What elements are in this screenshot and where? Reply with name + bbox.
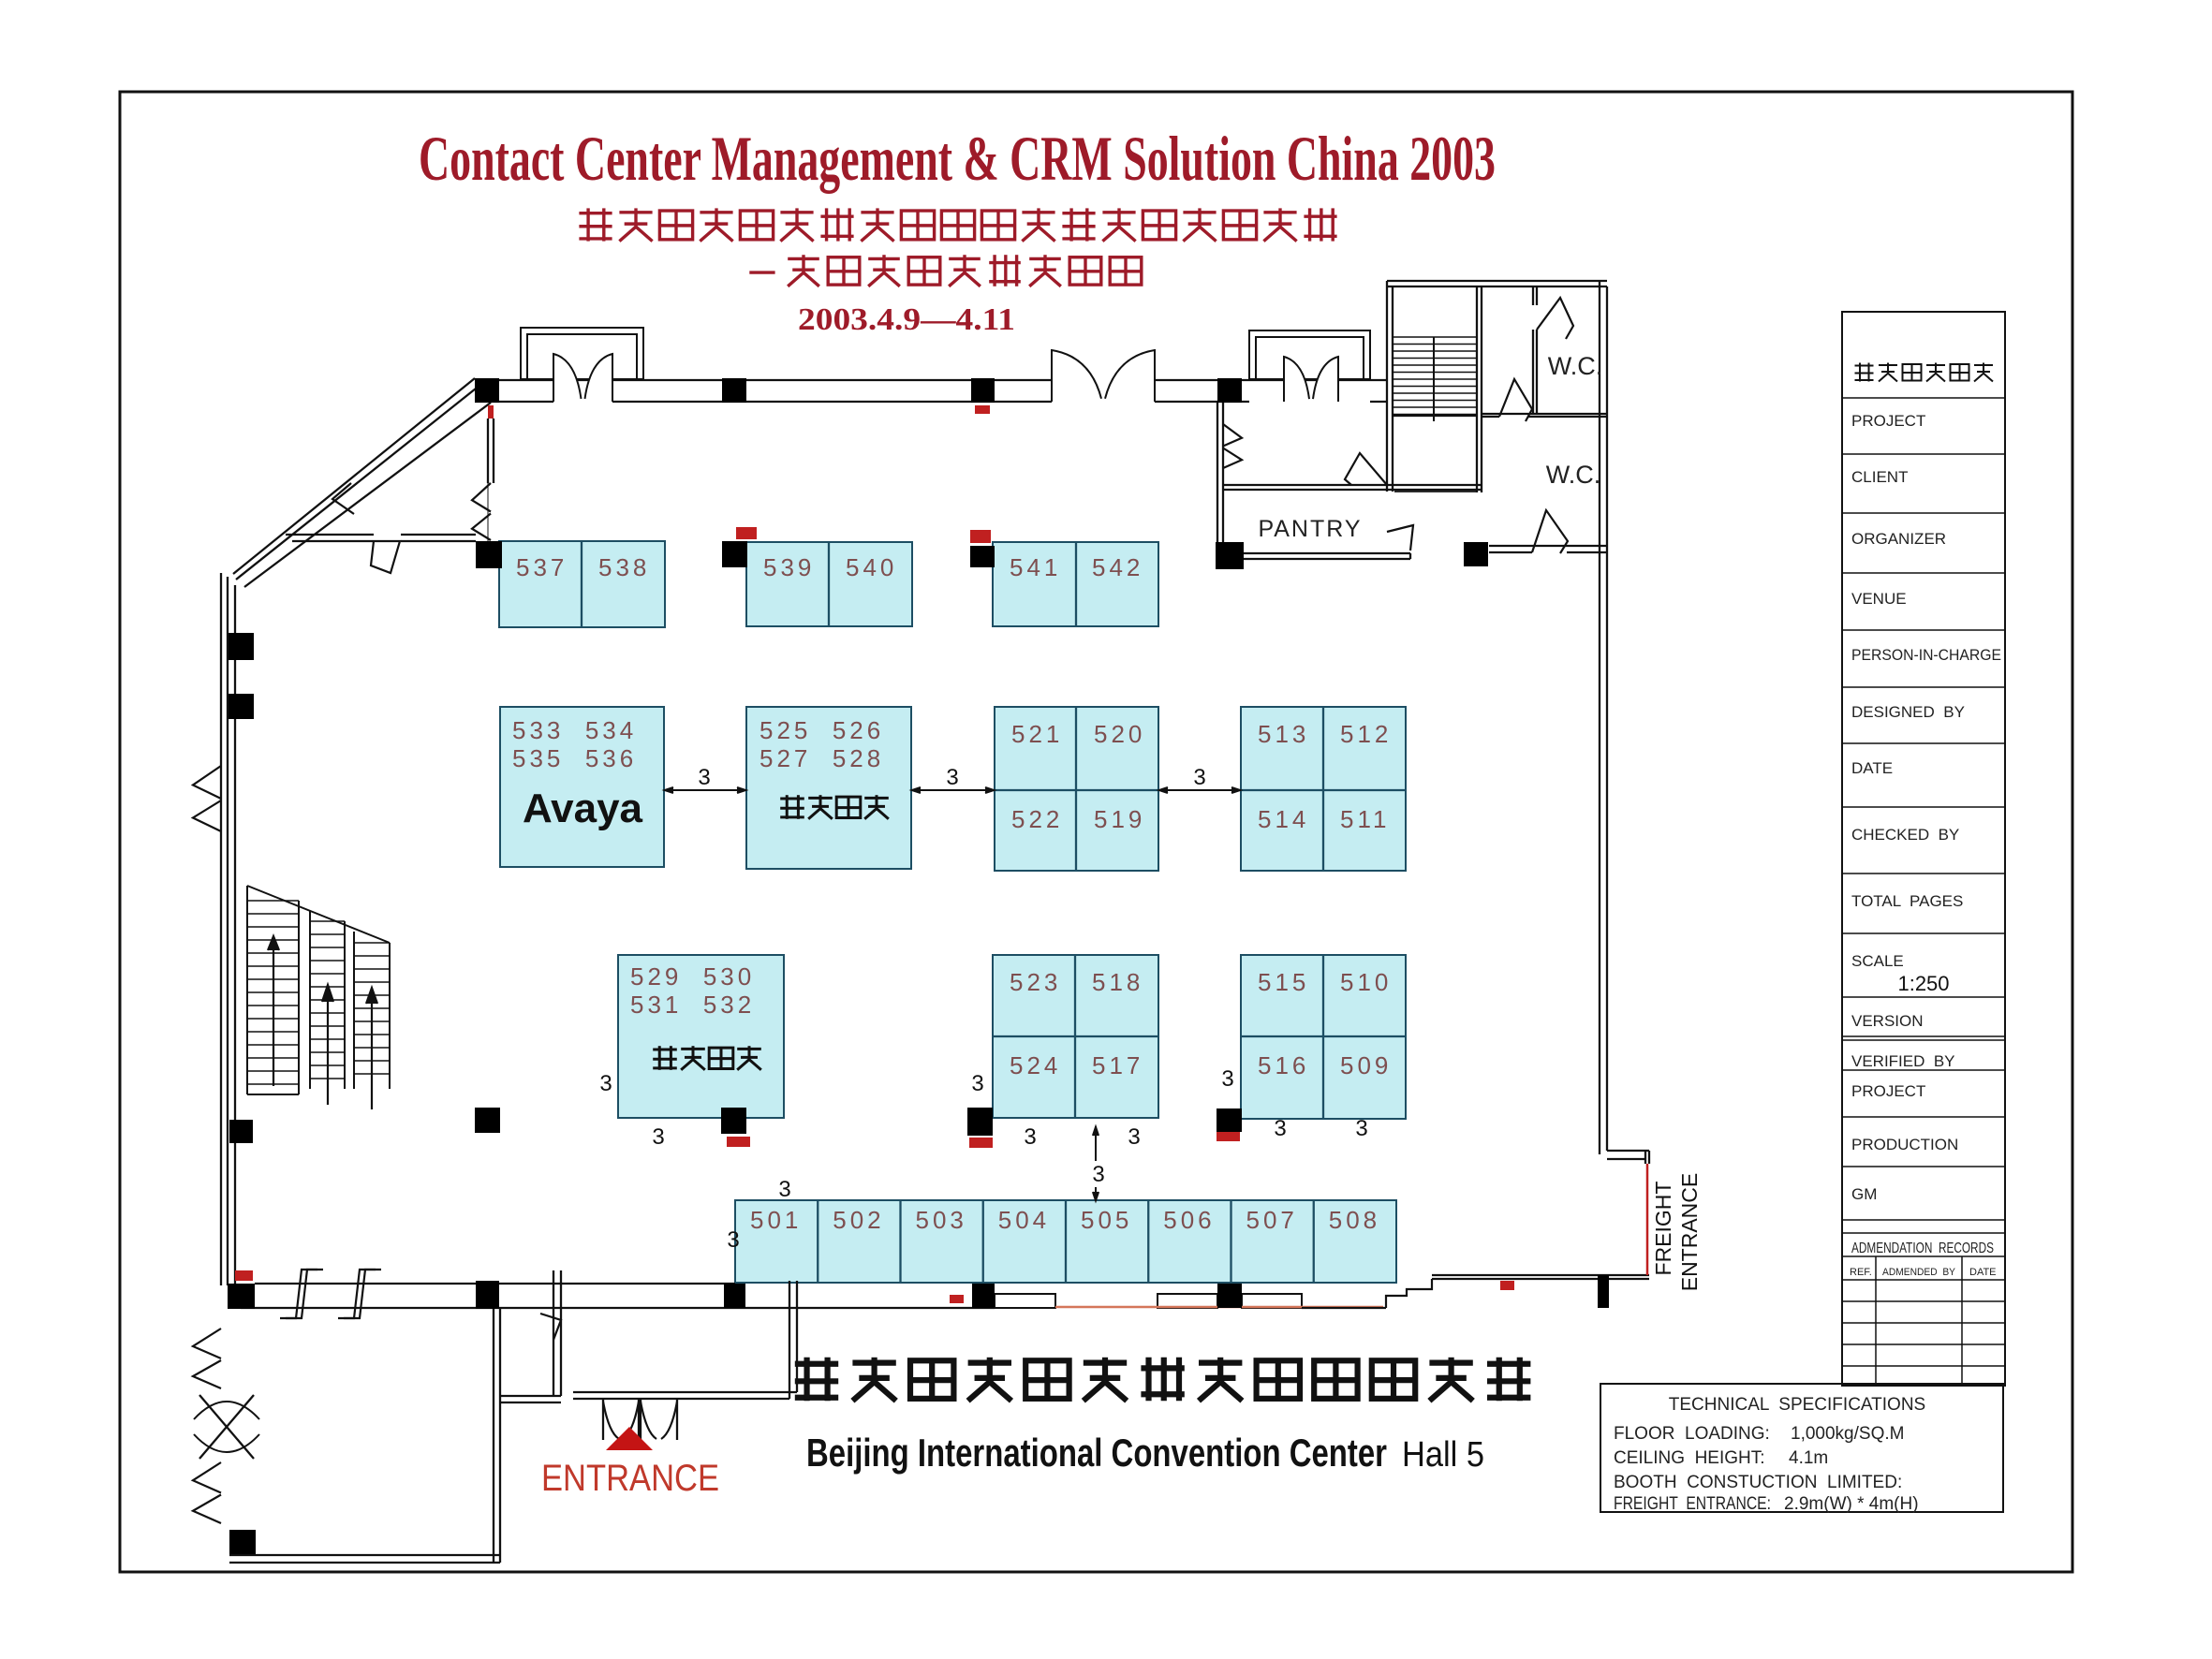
svg-text:ENTRANCE: ENTRANCE [541,1458,719,1499]
svg-text:VERIFIED BY: VERIFIED BY [1851,1052,1955,1070]
svg-text:3: 3 [946,765,958,790]
svg-text:533 534: 533 534 [512,716,637,744]
svg-text:3: 3 [1128,1124,1140,1150]
svg-text:513: 513 [1258,720,1309,748]
svg-text:527 528: 527 528 [759,744,884,772]
svg-text:2003.4.9—4.11: 2003.4.9—4.11 [798,302,1015,337]
svg-text:1:250: 1:250 [1897,972,1949,995]
svg-text:541: 541 [1010,553,1061,581]
svg-text:FREIGHT ENTRANCE:: FREIGHT ENTRANCE: [1614,1494,1771,1514]
svg-text:3: 3 [1355,1116,1367,1141]
svg-text:511: 511 [1340,805,1390,833]
svg-text:TECHNICAL SPECIFICATIONS: TECHNICAL SPECIFICATIONS [1669,1395,1925,1415]
svg-text:507: 507 [1246,1206,1298,1234]
svg-text:FREIGHT: FREIGHT [1651,1182,1675,1276]
svg-text:503: 503 [916,1206,967,1234]
svg-text:3: 3 [599,1071,612,1096]
svg-text:501: 501 [750,1206,802,1234]
svg-text:TOTAL PAGES: TOTAL PAGES [1851,892,1963,910]
svg-text:531 532: 531 532 [630,991,755,1019]
svg-text:506: 506 [1163,1206,1215,1234]
svg-text:520: 520 [1094,720,1145,748]
svg-text:521: 521 [1011,720,1063,748]
svg-text:504: 504 [998,1206,1050,1234]
svg-text:3: 3 [1221,1066,1233,1092]
svg-text:3: 3 [1092,1162,1104,1187]
svg-text:537: 537 [516,553,568,581]
svg-text:1,000kg/SQ.M: 1,000kg/SQ.M [1791,1424,1904,1444]
svg-text:519: 519 [1094,805,1145,833]
svg-text:509: 509 [1340,1051,1392,1079]
svg-text:3: 3 [1193,765,1205,790]
svg-text:517: 517 [1092,1051,1143,1079]
svg-text:3: 3 [727,1227,739,1253]
svg-text:Avaya: Avaya [523,785,643,831]
svg-text:514: 514 [1258,805,1309,833]
svg-text:535 536: 535 536 [512,744,637,772]
svg-text:W.C.: W.C. [1546,461,1601,489]
svg-text:FLOOR LOADING:: FLOOR LOADING: [1614,1424,1770,1444]
svg-text:Hall 5: Hall 5 [1402,1435,1484,1475]
svg-text:512: 512 [1340,720,1392,748]
svg-text:505: 505 [1081,1206,1132,1234]
svg-text:3: 3 [1024,1124,1036,1150]
svg-text:538: 538 [598,553,650,581]
svg-text:515: 515 [1258,968,1309,996]
svg-text:ORGANIZER: ORGANIZER [1851,530,1946,548]
svg-text:2.9m(W) * 4m(H): 2.9m(W) * 4m(H) [1784,1494,1919,1514]
svg-text:ADMENDED BY: ADMENDED BY [1882,1267,1956,1278]
svg-text:DESIGNED BY: DESIGNED BY [1851,703,1965,721]
svg-text:ENTRANCE: ENTRANCE [1677,1173,1702,1292]
svg-text:542: 542 [1092,553,1143,581]
svg-text:518: 518 [1092,968,1143,996]
svg-text:PROJECT: PROJECT [1851,1082,1925,1100]
svg-text:3: 3 [652,1124,664,1150]
svg-text:524: 524 [1010,1051,1061,1079]
svg-text:DATE: DATE [1969,1267,1997,1278]
svg-text:Contact Center Management & CR: Contact Center Management & CRM Solution… [419,123,1496,194]
svg-text:523: 523 [1010,968,1061,996]
svg-text:W.C.: W.C. [1548,352,1603,380]
svg-text:3: 3 [971,1071,983,1096]
svg-text:3: 3 [1274,1116,1286,1141]
svg-text:PRODUCTION: PRODUCTION [1851,1136,1958,1153]
svg-text:4.1m: 4.1m [1789,1448,1828,1468]
svg-text:539: 539 [763,553,815,581]
svg-text:PERSON-IN-CHARGE: PERSON-IN-CHARGE [1851,646,2001,664]
svg-text:516: 516 [1258,1051,1309,1079]
svg-text:3: 3 [698,765,710,790]
svg-text:510: 510 [1340,968,1392,996]
svg-text:502: 502 [833,1206,884,1234]
svg-text:PROJECT: PROJECT [1851,412,1925,430]
svg-text:DATE: DATE [1851,759,1893,777]
svg-text:VERSION: VERSION [1851,1012,1924,1030]
svg-text:CEILING HEIGHT:: CEILING HEIGHT: [1614,1448,1765,1468]
svg-text:522: 522 [1011,805,1063,833]
svg-text:PANTRY: PANTRY [1258,516,1362,542]
svg-text:VENUE: VENUE [1851,590,1907,608]
svg-text:529 530: 529 530 [630,962,755,991]
svg-text:3: 3 [778,1177,790,1202]
svg-text:GM: GM [1851,1185,1877,1203]
svg-text:REF.: REF. [1850,1267,1872,1278]
svg-text:CHECKED BY: CHECKED BY [1851,826,1959,844]
svg-text:525 526: 525 526 [759,716,884,744]
svg-text:BOOTH CONSTUCTION LIMITED:: BOOTH CONSTUCTION LIMITED: [1614,1473,1902,1492]
svg-text:540: 540 [846,553,897,581]
svg-text:SCALE: SCALE [1851,952,1904,970]
svg-text:Beijing International Conventi: Beijing International Convention Center [806,1431,1387,1475]
svg-text:508: 508 [1329,1206,1380,1234]
svg-text:ADMENDATION RECORDS: ADMENDATION RECORDS [1851,1241,1994,1256]
svg-text:CLIENT: CLIENT [1851,468,1908,486]
